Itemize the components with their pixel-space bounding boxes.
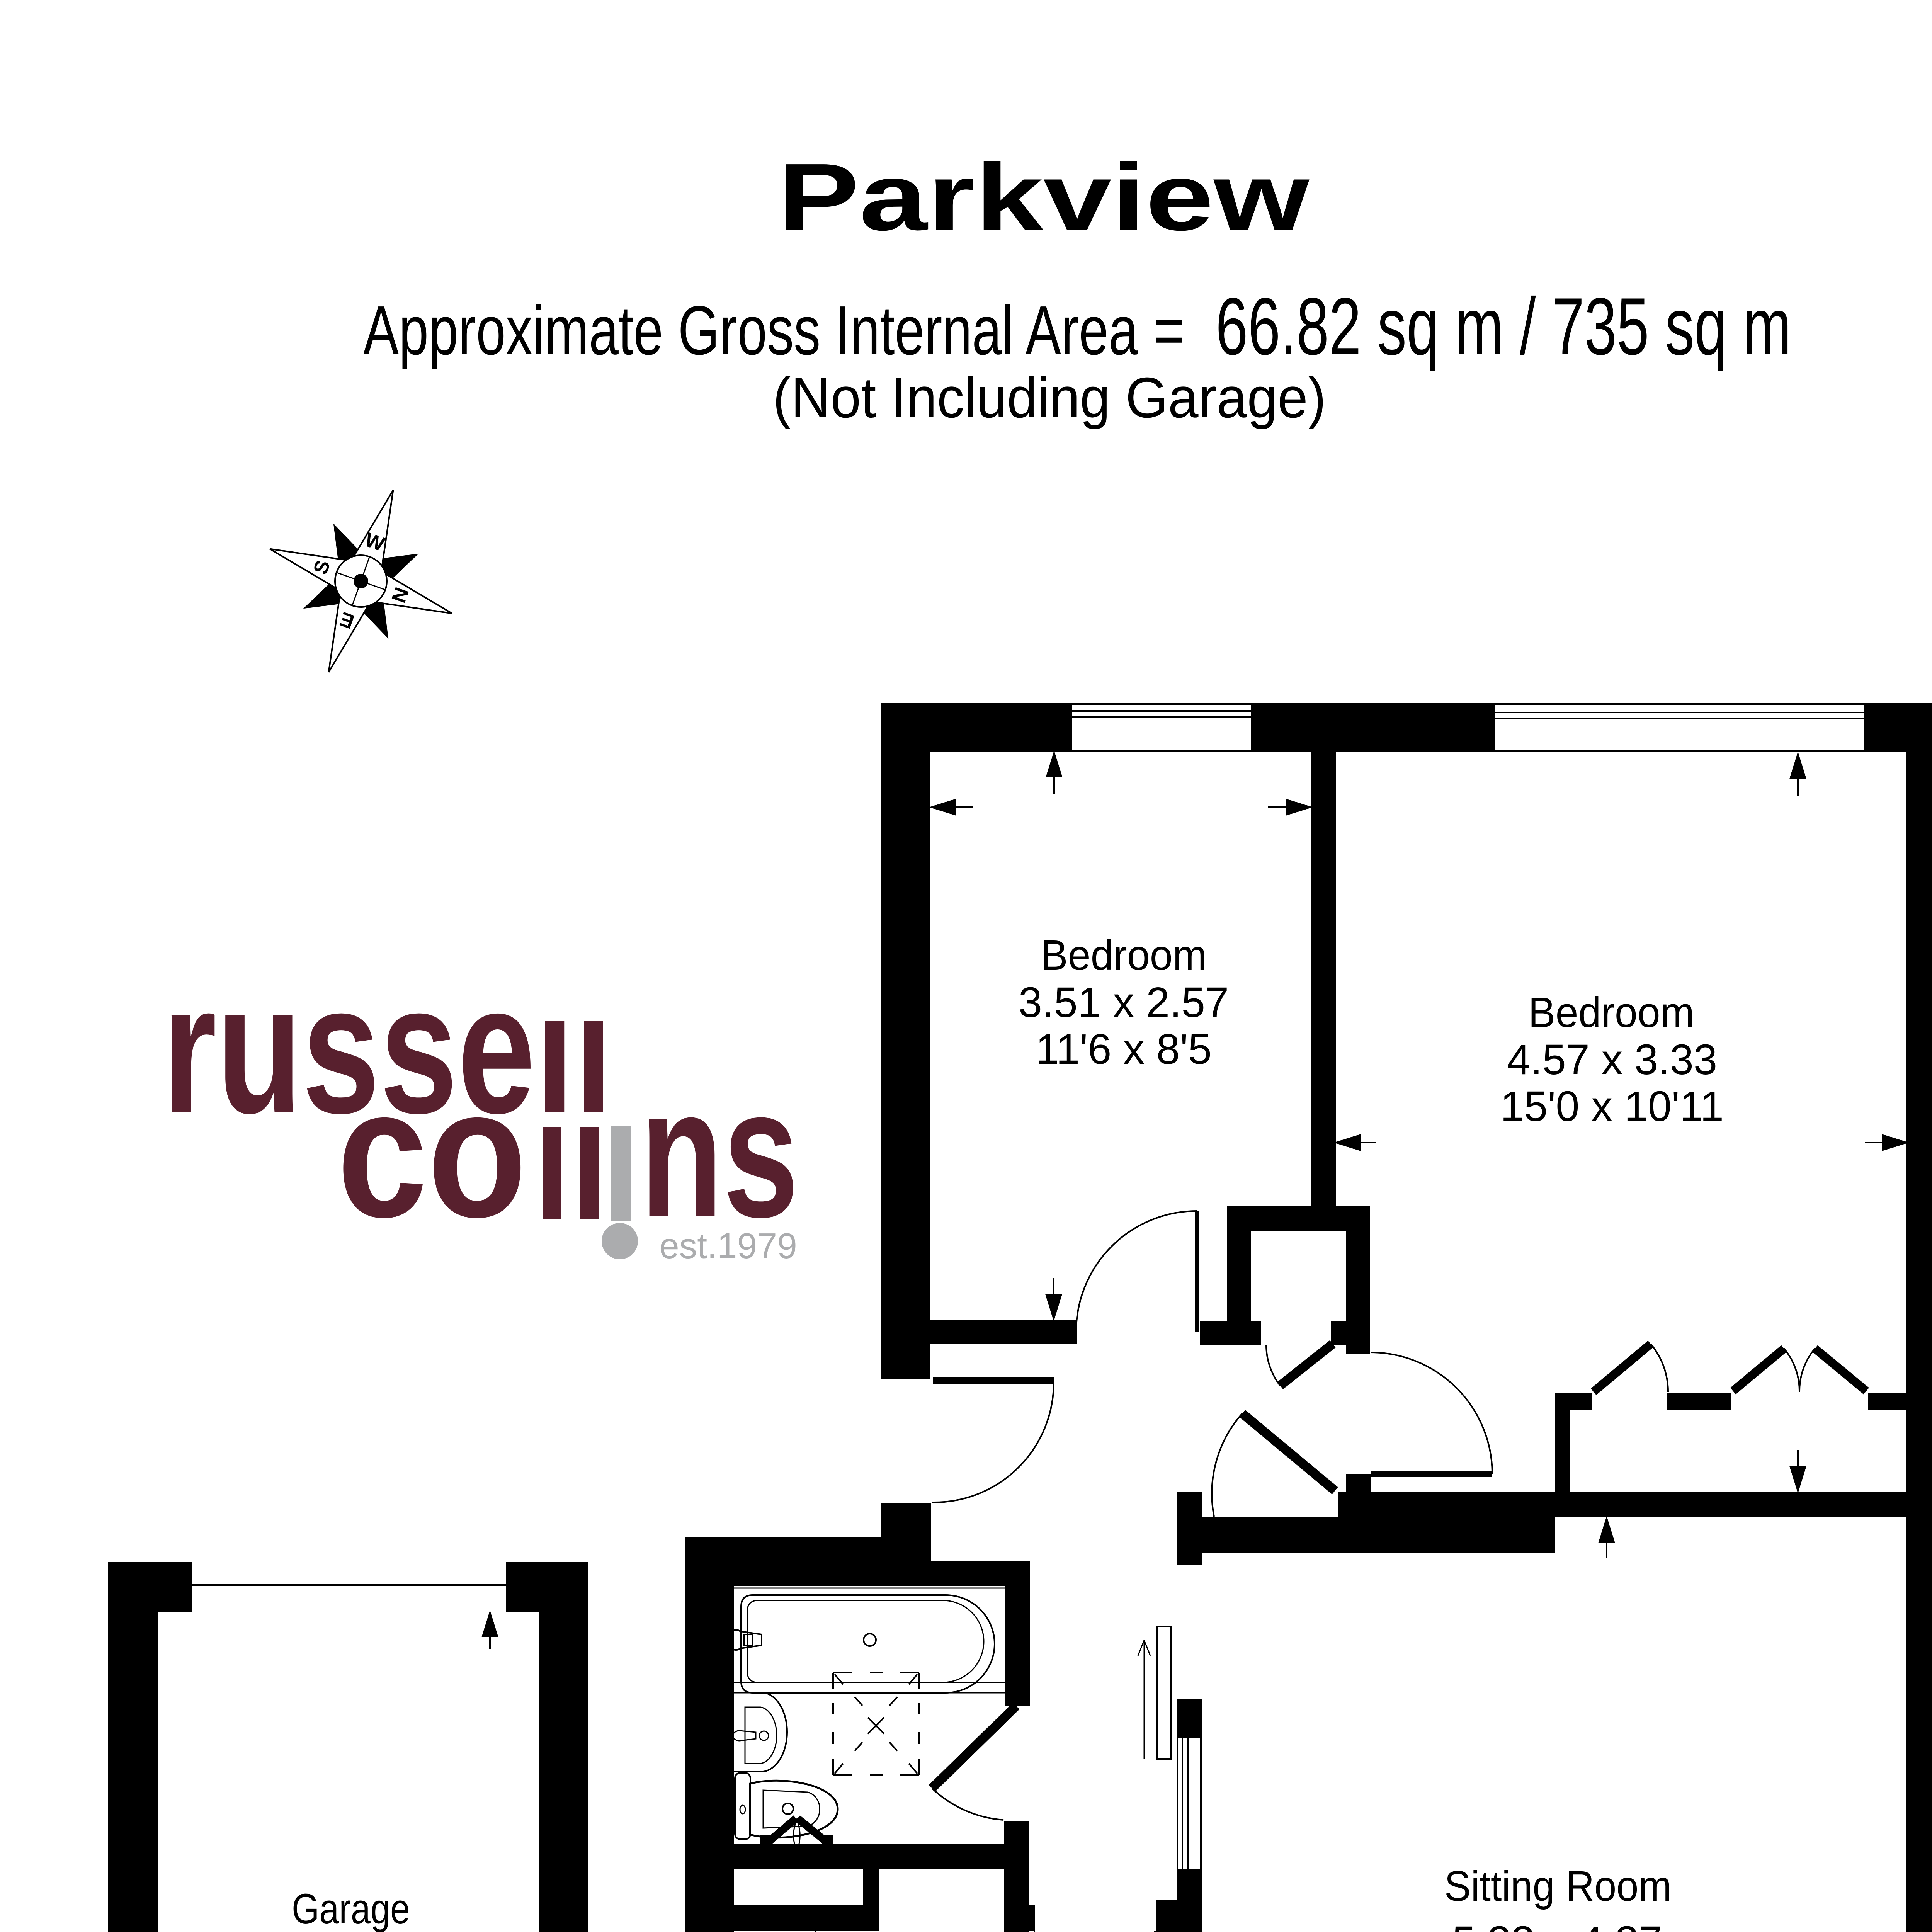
svg-text:Sitting Room: Sitting Room <box>1444 1862 1672 1910</box>
svg-text:(Not Including Garage): (Not Including Garage) <box>773 366 1326 430</box>
svg-text:11'6 x 8'5: 11'6 x 8'5 <box>1036 1026 1212 1073</box>
svg-text:Parkview: Parkview <box>777 144 1310 250</box>
svg-text:4.57 x 3.33: 4.57 x 3.33 <box>1507 1036 1717 1083</box>
svg-text:66.82 sq m / 735 sq m: 66.82 sq m / 735 sq m <box>1216 281 1791 372</box>
svg-text:Bedroom: Bedroom <box>1041 932 1207 979</box>
svg-text:3.51 x 2.57: 3.51 x 2.57 <box>1019 979 1229 1026</box>
svg-text:Bedroom: Bedroom <box>1528 989 1694 1036</box>
svg-text:est.1979: est.1979 <box>659 1226 797 1266</box>
svg-text:5.33 x 4.37: 5.33 x 4.37 <box>1452 1918 1662 1932</box>
svg-text:Approximate Gross Internal Are: Approximate Gross Internal Area = <box>363 292 1184 369</box>
svg-text:ns: ns <box>640 1050 799 1255</box>
svg-text:15'0 x 10'11: 15'0 x 10'11 <box>1500 1083 1724 1130</box>
svg-text:co: co <box>337 1050 527 1256</box>
svg-text:Garage: Garage <box>292 1885 410 1932</box>
